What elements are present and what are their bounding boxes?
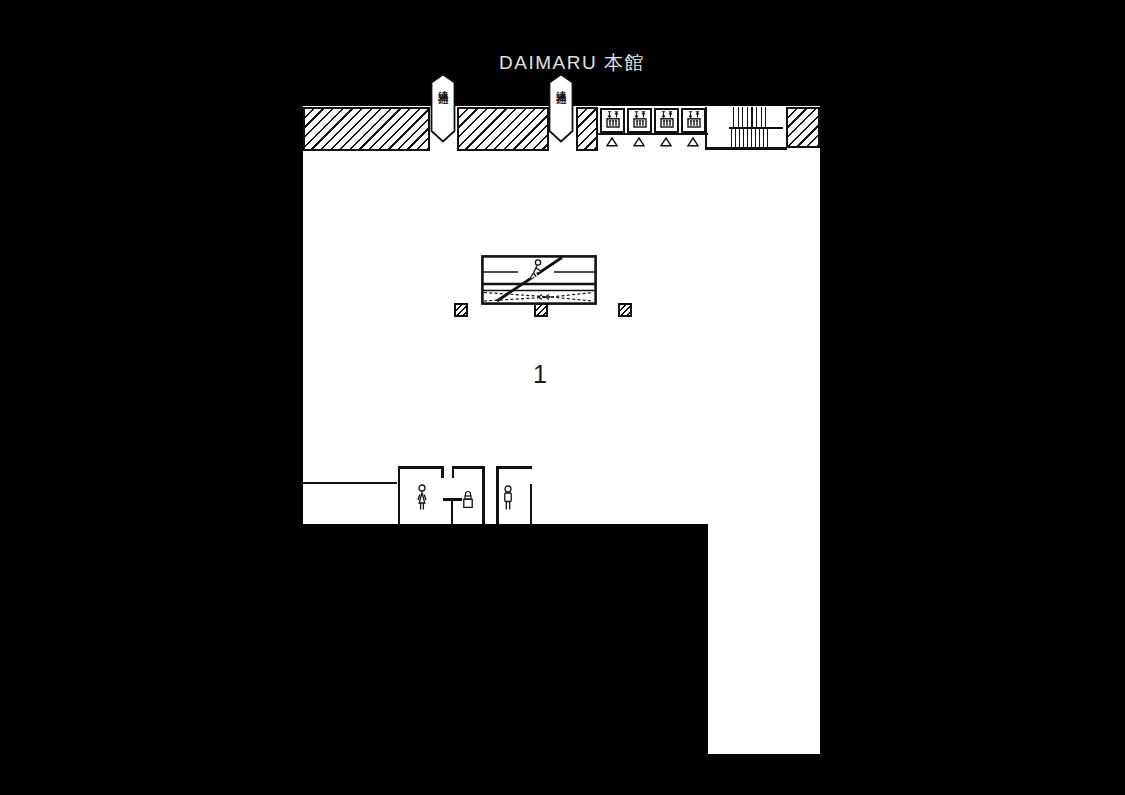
wall-segment [530,484,533,524]
woman-icon [412,484,432,511]
hatched-pillar [618,303,632,317]
elevator-icon [605,111,621,128]
passage-banner-label: 連絡通路 [556,81,567,87]
triangle-marker [606,137,618,147]
escalator-block [481,255,597,305]
hatched-pillar [534,303,548,317]
triangle-marker [633,137,645,147]
floor-area-right-wing [708,523,820,754]
staircase-center-rail [729,127,783,130]
wall-segment [482,466,485,524]
man-icon [499,485,517,511]
wall-segment [496,466,532,469]
wall-segment [398,466,444,469]
floor-number-label: 1 [528,360,552,389]
elevator-cell [681,108,706,133]
elevator-icon [659,111,675,128]
floorplan-canvas: DAIMARU 本館 連絡通路 連絡通路 [0,0,1125,795]
wall-segment [398,466,401,524]
wall-segment [441,466,444,478]
elevator-icon [632,111,648,128]
floor-area-main [303,106,820,524]
wall-segment [452,466,485,469]
elevator-cell [600,108,625,133]
wall-hatched-block-a [303,107,430,151]
lock-icon [461,490,475,509]
passage-banner-right: 連絡通路 [548,73,574,143]
passage-banner-label: 連絡通路 [438,81,449,87]
staircase-steps-upper [733,107,770,127]
elevator-cell [654,108,679,133]
triangle-marker [660,137,672,147]
wall-segment [303,482,397,485]
wall-segment [705,107,707,149]
wall-hatched-block-d [786,107,820,148]
passage-banner-left: 連絡通路 [430,73,456,143]
triangle-marker [687,137,699,147]
wall-hatched-block-c [576,107,598,151]
elevator-icon [686,111,702,128]
wall-hatched-block-b [457,107,549,151]
wall-segment [451,498,454,524]
wall-segment [597,133,708,136]
hatched-pillar [454,303,468,317]
staircase-steps-lower [731,129,771,148]
elevator-cell [627,108,652,133]
